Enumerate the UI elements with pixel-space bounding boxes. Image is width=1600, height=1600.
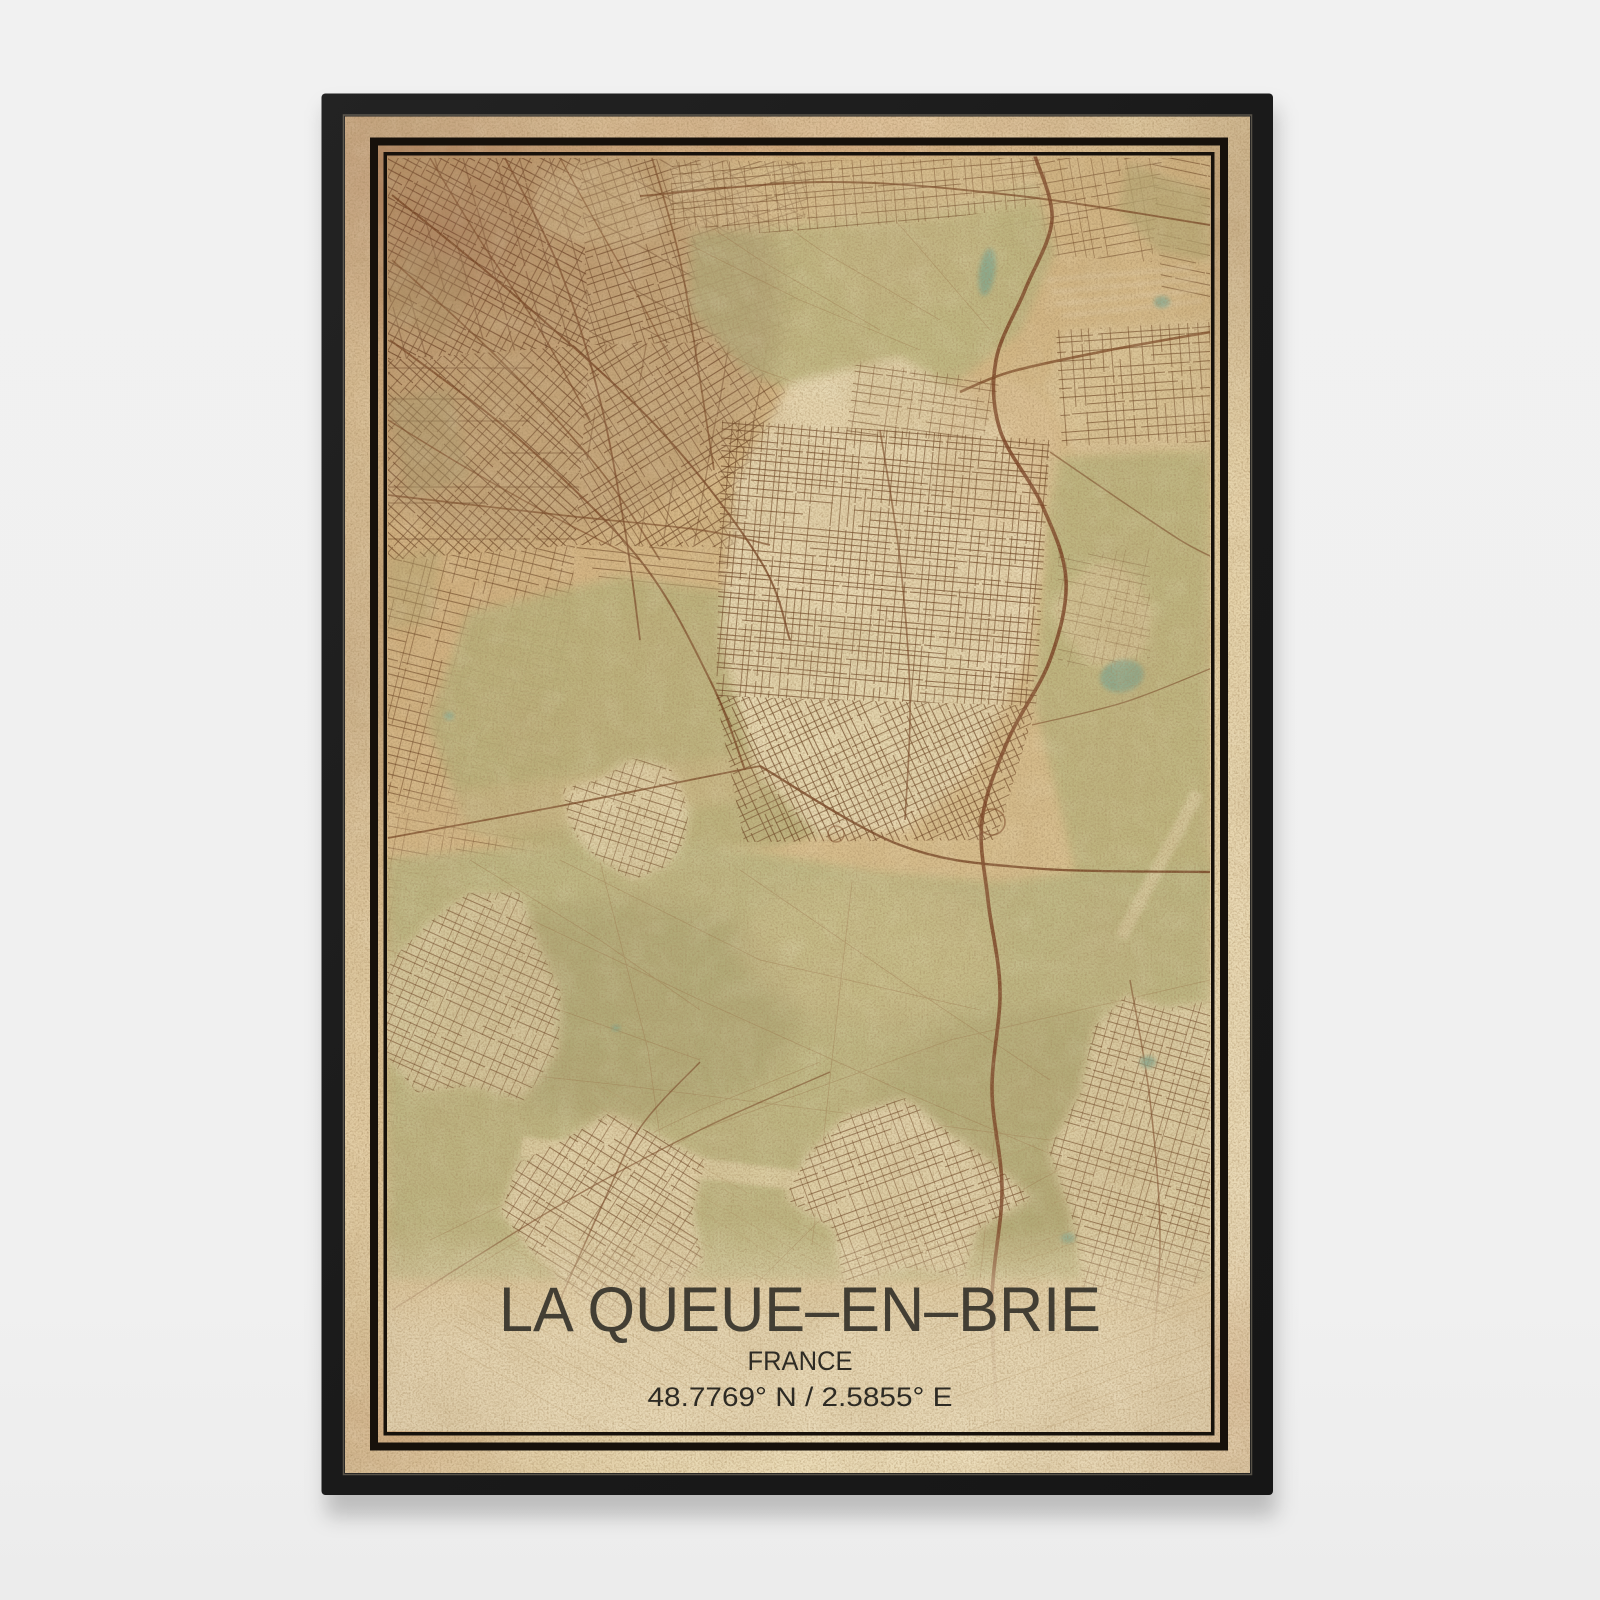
- svg-text:48.7769° N / 2.5855° E: 48.7769° N / 2.5855° E: [648, 1382, 953, 1412]
- svg-text:FRANCE: FRANCE: [748, 1346, 853, 1376]
- svg-text:LA QUEUE–EN–BRIE: LA QUEUE–EN–BRIE: [499, 1275, 1101, 1345]
